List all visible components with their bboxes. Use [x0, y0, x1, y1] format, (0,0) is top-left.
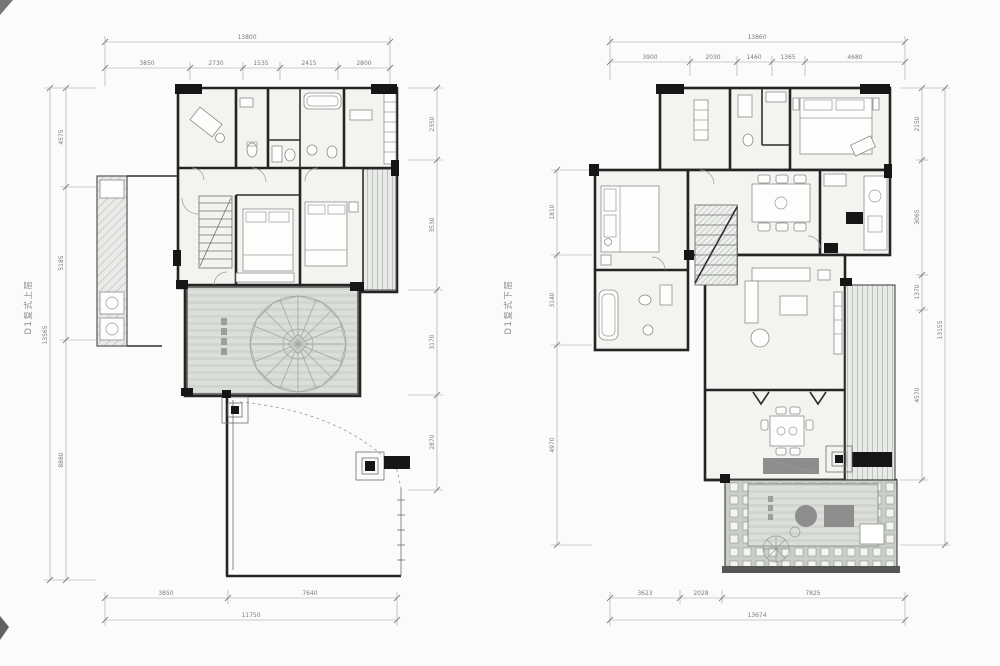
edge-artifact-top [0, 0, 13, 15]
dim-label: 1460 [746, 54, 761, 61]
left-plan-left-dimensions: 4575 5185 8880 13565 [42, 85, 96, 583]
right-plan-stairs-icon [695, 205, 737, 285]
dim-label: 4570 [914, 387, 921, 402]
lounge-icon [824, 505, 854, 527]
left-plan-bed-icon-1 [236, 209, 294, 282]
dim-label: 13155 [937, 320, 944, 339]
right-plan-dining-table-icon [752, 175, 810, 231]
floorplan-drawing: 13800 3850 2730 1535 2415 2800 3850 7640… [0, 0, 1000, 666]
floorplan-canvas: 13800 3850 2730 1535 2415 2800 3850 7640… [0, 0, 1000, 666]
dim-label: 13674 [747, 612, 766, 619]
dim-label: 2800 [356, 60, 371, 67]
dim-label: 7640 [302, 590, 317, 597]
dim-label: 3850 [139, 60, 154, 67]
dim-label: 3900 [642, 54, 657, 61]
edge-artifact-bottom [0, 616, 9, 640]
column-icon [356, 452, 410, 480]
dim-label: 2415 [301, 60, 316, 67]
dim-label: 4680 [847, 54, 862, 61]
right-plan-right-dimensions: 2150 3065 1370 4570 13155 [900, 85, 950, 548]
dim-label: 3140 [549, 292, 556, 307]
dim-label: 2870 [429, 434, 436, 449]
dim-label: 1535 [253, 60, 268, 67]
dim-label: 8880 [58, 452, 65, 467]
right-plan-top-dimensions: 13860 3900 2030 1460 1365 4680 [607, 34, 908, 80]
dim-label: 13565 [42, 325, 49, 344]
left-plan-title: D1复式上层 [23, 280, 34, 335]
dim-label: 1365 [780, 54, 795, 61]
dim-label: 13800 [237, 34, 256, 41]
dim-label: 3850 [158, 590, 173, 597]
parasol-ornament-icon [250, 296, 346, 392]
left-plan: 13800 3850 2730 1535 2415 2800 3850 7640… [23, 34, 443, 626]
right-plan-title: D1复式下层 [503, 280, 514, 335]
left-plan-roof-terrace [187, 287, 358, 394]
right-plan-bottom-dimensions: 3623 2028 7825 13674 [607, 590, 908, 626]
dim-label: 3623 [637, 590, 652, 597]
dim-label: 1370 [914, 284, 921, 299]
right-plan-terrace [722, 480, 900, 573]
right-plan-left-dimensions: 1810 3140 4970 [549, 167, 592, 548]
dim-label: 2150 [914, 116, 921, 131]
fan-plant-icon [763, 536, 789, 562]
right-plan-side-balcony [845, 285, 895, 480]
terrace-label-blur [768, 496, 773, 520]
dim-label: 3530 [429, 217, 436, 232]
dim-label: 7825 [805, 590, 820, 597]
dim-label: 3065 [914, 209, 921, 224]
left-plan-top-dimensions: 13800 3850 2730 1535 2415 2800 [102, 34, 393, 86]
left-plan-side-balcony [97, 176, 178, 346]
dim-label: 2730 [208, 60, 223, 67]
plant-icon [795, 505, 817, 527]
right-plan: 13860 3900 2030 1460 1365 4680 3623 2028… [503, 34, 950, 626]
left-plan-bottom-dimensions: 3850 7640 11750 [102, 590, 400, 626]
dim-label: 4970 [549, 437, 556, 452]
right-plan-master-bed-icon [793, 98, 879, 156]
dim-label: 2030 [705, 54, 720, 61]
dim-label: 3170 [429, 334, 436, 349]
left-plan-open-roof-area [222, 396, 410, 576]
left-plan-right-balcony [363, 169, 396, 290]
dim-label: 2350 [429, 116, 436, 131]
left-plan-right-dimensions: 2350 3530 3170 2870 [408, 85, 443, 493]
dim-label: 13860 [747, 34, 766, 41]
dim-label: 11750 [241, 612, 260, 619]
dim-label: 5185 [58, 255, 65, 270]
dim-label: 1810 [549, 204, 556, 219]
dim-label: 2028 [693, 590, 708, 597]
dim-label: 4575 [58, 129, 65, 144]
